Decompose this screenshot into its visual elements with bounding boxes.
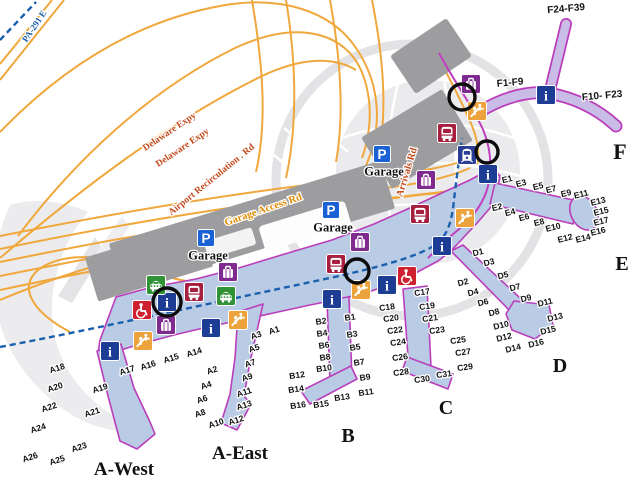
gate-label-a8: A8 bbox=[193, 407, 207, 420]
gate-label-b11: B11 bbox=[358, 386, 375, 398]
region-label: B bbox=[341, 425, 354, 447]
info-icon-glyph: i bbox=[165, 297, 169, 312]
gate-label-b4: B4 bbox=[316, 327, 328, 338]
gate-label-d1: D1 bbox=[471, 246, 484, 258]
info-icon-glyph: i bbox=[209, 323, 213, 338]
gate-label-d12: D12 bbox=[495, 330, 513, 344]
gate-label-e3: E3 bbox=[515, 177, 528, 189]
parking-icon-glyph: P bbox=[326, 203, 335, 218]
gate-label-b5: B5 bbox=[349, 341, 361, 352]
gate-label-e5: E5 bbox=[532, 180, 545, 192]
gate-label-a7: A7 bbox=[243, 357, 257, 370]
gate-label-b15: B15 bbox=[313, 398, 330, 410]
gate-label-c21: C21 bbox=[422, 312, 439, 324]
gate-label-a9: A9 bbox=[240, 371, 254, 384]
gate-label-d7: D7 bbox=[508, 281, 521, 293]
gate-label-c22: C22 bbox=[387, 324, 404, 336]
region-label: F bbox=[613, 139, 626, 164]
airport-terminal-map: PA-291 EDelaware ExpyDelaware ExpyAirpor… bbox=[0, 0, 640, 480]
gate-label-b3: B3 bbox=[346, 328, 358, 339]
info-icon-glyph: i bbox=[486, 169, 490, 184]
info-icon-glyph: i bbox=[330, 294, 334, 309]
gate-label-d8: D8 bbox=[487, 306, 500, 318]
gate-label-c25: C25 bbox=[450, 334, 467, 346]
gate-label-c23: C23 bbox=[429, 324, 446, 336]
gate-label-b1: B1 bbox=[344, 311, 356, 322]
gate-label-d2: D2 bbox=[456, 276, 469, 288]
gate-label-e9: E9 bbox=[560, 187, 573, 199]
parking-icon-glyph: P bbox=[377, 147, 386, 162]
gate-label-e10: E10 bbox=[544, 220, 561, 233]
gate-label-c27: C27 bbox=[455, 346, 472, 358]
gate-label-d10: D10 bbox=[492, 318, 510, 332]
gate-label-b13: B13 bbox=[334, 391, 351, 403]
gate-label-b16: B16 bbox=[290, 399, 307, 411]
gate-label-b12: B12 bbox=[289, 369, 306, 381]
gate-label-f1-f9: F1-F9 bbox=[496, 76, 524, 89]
gate-label-e12: E12 bbox=[556, 231, 573, 244]
gate-label-a25: A25 bbox=[48, 453, 66, 467]
gate-label-d14: D14 bbox=[504, 341, 522, 355]
accessibility-icon bbox=[133, 301, 152, 320]
gate-label-c29: C29 bbox=[457, 361, 474, 373]
info-icon-glyph: i bbox=[440, 241, 444, 256]
gate-label-a10: A10 bbox=[207, 416, 225, 430]
parking-icon-glyph: P bbox=[201, 231, 210, 246]
gate-label-a6: A6 bbox=[195, 393, 209, 406]
gate-label-a15: A15 bbox=[162, 351, 180, 365]
gate-label-c30: C30 bbox=[414, 373, 431, 385]
map-canvas: PA-291 EDelaware ExpyDelaware ExpyAirpor… bbox=[0, 0, 640, 480]
accessibility-icon bbox=[398, 267, 417, 286]
gate-label-d3: D3 bbox=[482, 256, 495, 268]
gate-label-e14: E14 bbox=[574, 231, 591, 244]
gate-label-f10-f23: F10- F23 bbox=[581, 89, 623, 104]
info-icon-glyph: i bbox=[385, 280, 389, 295]
gate-label-a1: A1 bbox=[267, 324, 281, 337]
gate-label-a5: A5 bbox=[247, 342, 261, 355]
region-label: A-West bbox=[94, 459, 155, 480]
region-label: C bbox=[439, 397, 453, 419]
garage-label: Garage bbox=[313, 221, 353, 235]
garage-label: Garage bbox=[364, 165, 404, 179]
gate-label-a4: A4 bbox=[199, 379, 213, 392]
gate-label-b6: B6 bbox=[318, 339, 330, 350]
region-label: A-East bbox=[212, 443, 269, 464]
gate-label-d16: D16 bbox=[527, 336, 545, 350]
region-label: D bbox=[553, 355, 567, 377]
info-icon-glyph: i bbox=[108, 346, 112, 361]
gate-label-c24: C24 bbox=[390, 336, 407, 348]
gate-label-c28: C28 bbox=[393, 366, 410, 378]
gate-label-b2: B2 bbox=[315, 315, 327, 326]
train-station-icon-glyph bbox=[461, 149, 472, 162]
gate-label-f24-f39: F24-F39 bbox=[547, 2, 586, 16]
gate-label-a23: A23 bbox=[70, 440, 88, 454]
gate-label-a24: A24 bbox=[29, 421, 47, 435]
gate-label-d11: D11 bbox=[536, 295, 553, 308]
garage-label: Garage bbox=[188, 249, 228, 263]
gate-label-b7: B7 bbox=[353, 356, 365, 367]
gate-label-a2: A2 bbox=[205, 364, 219, 377]
gate-label-b8: B8 bbox=[319, 351, 331, 362]
gate-label-e7: E7 bbox=[545, 183, 558, 195]
info-icon-glyph: i bbox=[544, 90, 548, 105]
region-label: E bbox=[615, 253, 628, 275]
gate-label-a3: A3 bbox=[249, 329, 263, 342]
gate-label-a22: A22 bbox=[40, 400, 58, 414]
gate-label-a14: A14 bbox=[185, 345, 203, 359]
gate-label-b9: B9 bbox=[359, 371, 371, 382]
gate-label-c20: C20 bbox=[383, 312, 400, 324]
gate-label-a26: A26 bbox=[21, 450, 39, 464]
gate-label-a16: A16 bbox=[139, 358, 157, 372]
